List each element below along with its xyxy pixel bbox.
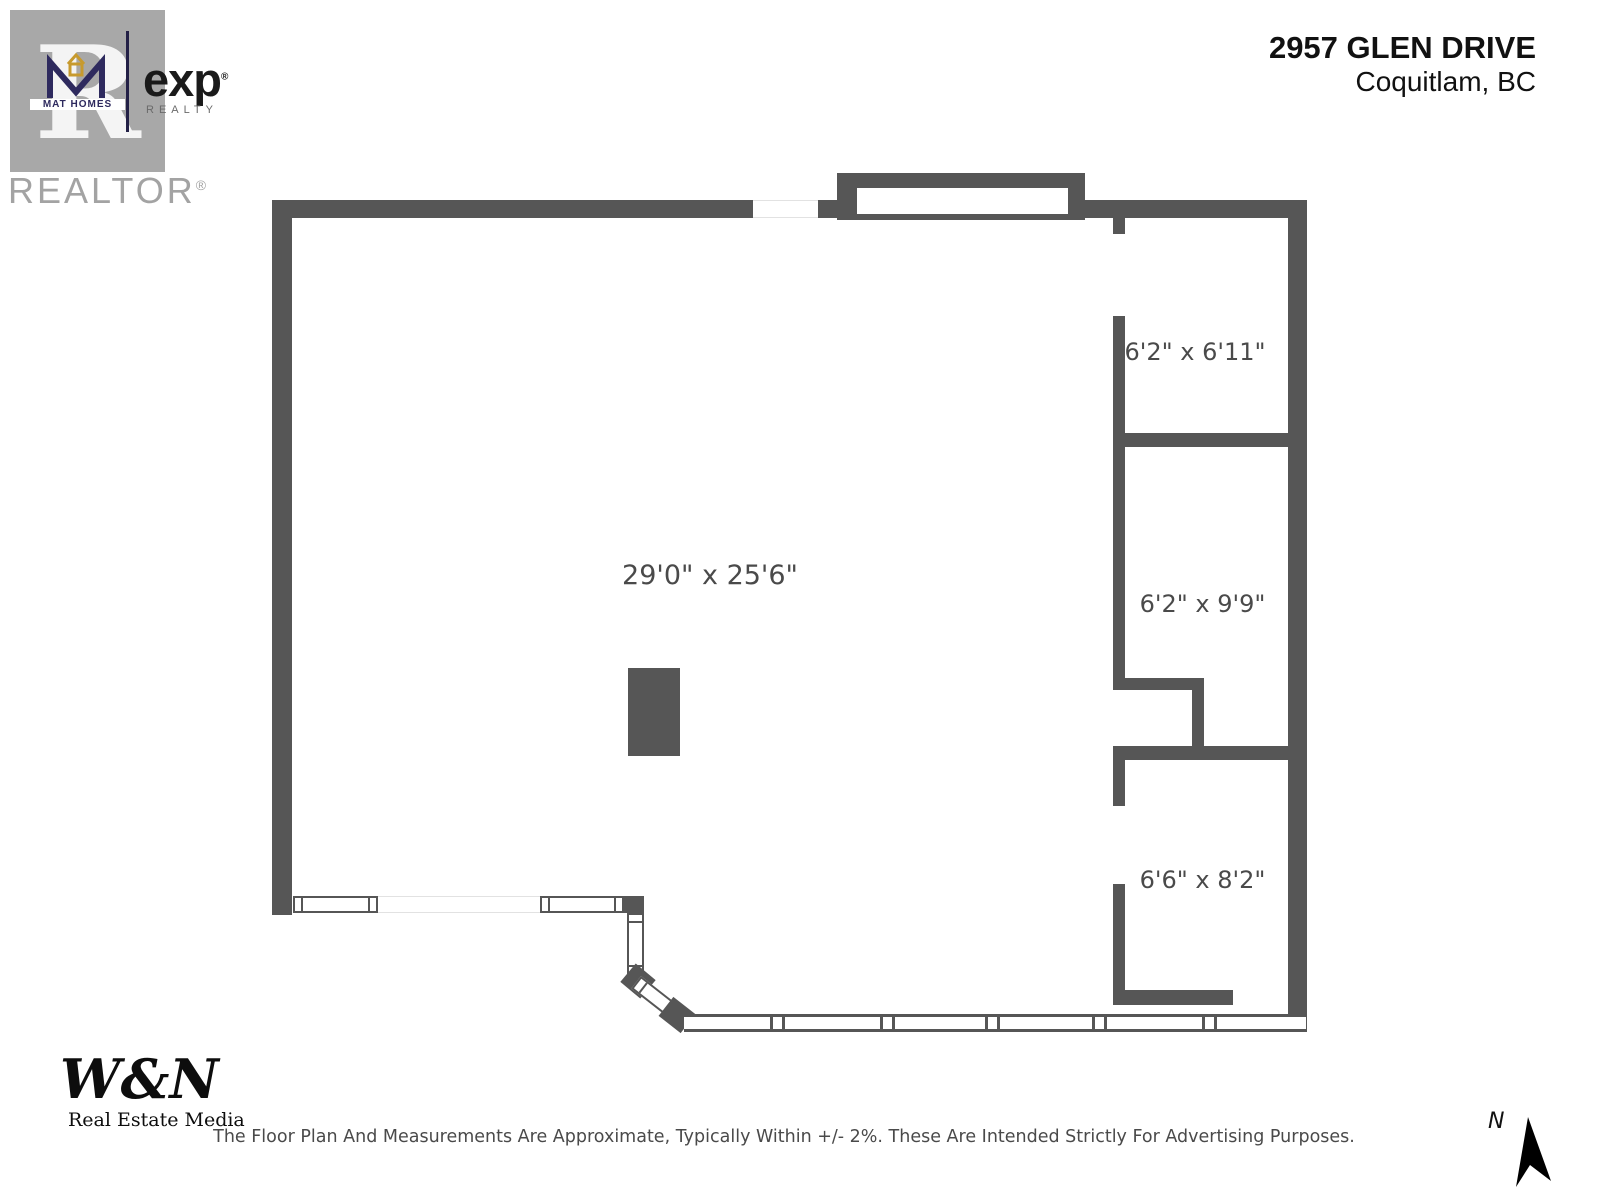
- exp-realty-logo: exp® REALTY: [143, 56, 227, 116]
- disclaimer-text: The Floor Plan And Measurements Are Appr…: [0, 1127, 1568, 1147]
- room3-bottom-wall: [1113, 990, 1233, 1005]
- room3-dimensions: 6'6" x 8'2": [1100, 866, 1305, 894]
- window-mullion: [1202, 1017, 1217, 1029]
- wall-left: [272, 200, 292, 915]
- exp-wordmark: exp®: [143, 56, 227, 103]
- window-band-bottom: [684, 1014, 1306, 1032]
- room1-dimensions: 6'2" x 6'11": [1095, 338, 1295, 366]
- wall-top-mid: [818, 200, 838, 218]
- north-label: N: [1488, 1109, 1504, 1134]
- wn-wordmark: W&N: [60, 1050, 245, 1109]
- window-mullion: [770, 1017, 785, 1029]
- notch-wall-top: [1113, 678, 1204, 690]
- window-bottom-2: [540, 896, 624, 913]
- wall-top-right: [1085, 200, 1307, 218]
- address-line2: Coquitlam, BC: [1269, 66, 1536, 98]
- room2-dimensions: 6'2" x 9'9": [1100, 590, 1305, 618]
- room-divider-1: [1113, 433, 1307, 447]
- wall-opening-top: [753, 200, 818, 218]
- main-room-dimensions: 29'0" x 25'6": [555, 560, 865, 591]
- wall-top-left: [272, 200, 753, 218]
- fireplace: [628, 668, 680, 756]
- window-mullion: [985, 1017, 1000, 1029]
- partition-stub-top: [1113, 218, 1125, 234]
- registered-icon: ®: [221, 71, 227, 82]
- window-mullion: [880, 1017, 895, 1029]
- window-bottom-1: [293, 896, 378, 913]
- room-divider-2: [1113, 746, 1307, 760]
- exp-realty-sub: REALTY: [143, 104, 227, 116]
- mat-homes-wordmark: MAT HOMES: [30, 99, 125, 110]
- mat-homes-logo-icon: [44, 50, 108, 102]
- corner-block: [623, 896, 644, 913]
- bay-window: [857, 188, 1068, 214]
- partition-lower-b: [1113, 884, 1125, 1005]
- property-address: 2957 GLEN DRIVE Coquitlam, BC: [1269, 30, 1536, 98]
- floor-plan-flyer: R REALTOR® MAT HOMES exp® REALTY 2957 GL…: [0, 0, 1600, 1200]
- partition-upper: [1113, 316, 1125, 690]
- brand-divider: [126, 31, 129, 132]
- north-arrow: N: [1478, 1095, 1568, 1195]
- address-line1: 2957 GLEN DRIVE: [1269, 30, 1536, 66]
- realtor-wordmark: REALTOR®: [8, 170, 209, 212]
- registered-icon: ®: [196, 177, 209, 193]
- wall-opening-bottom: [378, 896, 540, 913]
- partition-lower-a: [1113, 760, 1125, 806]
- wn-media-logo: W&N Real Estate Media: [60, 1050, 245, 1131]
- window-mullion: [1092, 1017, 1107, 1029]
